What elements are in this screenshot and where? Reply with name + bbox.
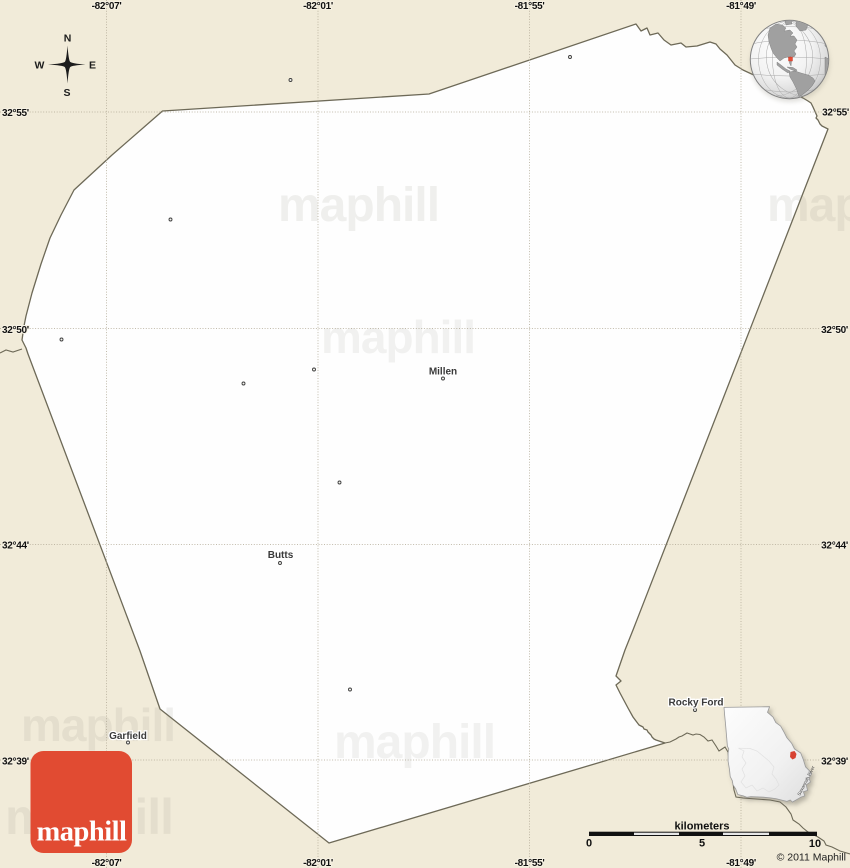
svg-text:-82°01': -82°01' (303, 1, 333, 12)
svg-text:-82°01': -82°01' (303, 858, 333, 868)
svg-text:-81°49': -81°49' (726, 858, 756, 868)
svg-text:Millen: Millen (429, 367, 457, 378)
svg-text:-81°55': -81°55' (515, 858, 545, 868)
svg-text:E: E (89, 60, 96, 72)
svg-text:32°44': 32°44' (2, 541, 29, 552)
svg-text:5: 5 (699, 838, 705, 850)
svg-text:maphill: maphill (37, 817, 128, 848)
svg-text:10: 10 (809, 838, 821, 850)
svg-text:32°39': 32°39' (821, 757, 848, 768)
svg-text:N: N (64, 33, 72, 45)
svg-text:-82°07': -82°07' (92, 1, 122, 12)
svg-text:32°50': 32°50' (2, 325, 29, 336)
svg-text:kilometers: kilometers (674, 821, 729, 833)
svg-text:-81°49': -81°49' (726, 1, 756, 12)
svg-text:maphill: maphill (278, 179, 439, 232)
svg-text:Rocky Ford: Rocky Ford (668, 698, 723, 709)
svg-text:maphill: maphill (767, 179, 850, 232)
svg-text:-82°07': -82°07' (92, 858, 122, 868)
svg-text:32°44': 32°44' (821, 541, 848, 552)
svg-text:Garfield: Garfield (109, 731, 147, 742)
svg-text:32°39': 32°39' (2, 757, 29, 768)
svg-text:maphill: maphill (321, 311, 475, 363)
svg-text:32°50': 32°50' (821, 325, 848, 336)
svg-text:32°55': 32°55' (2, 108, 29, 119)
svg-text:S: S (63, 87, 70, 99)
svg-text:maphill: maphill (21, 699, 175, 751)
svg-text:-81°55': -81°55' (515, 1, 545, 12)
svg-text:W: W (35, 60, 45, 72)
svg-text:Butts: Butts (268, 550, 294, 561)
svg-text:0: 0 (586, 838, 592, 850)
svg-text:32°55': 32°55' (822, 108, 849, 119)
svg-text:maphill: maphill (334, 716, 495, 769)
svg-text:© 2011 Maphill: © 2011 Maphill (777, 852, 846, 864)
